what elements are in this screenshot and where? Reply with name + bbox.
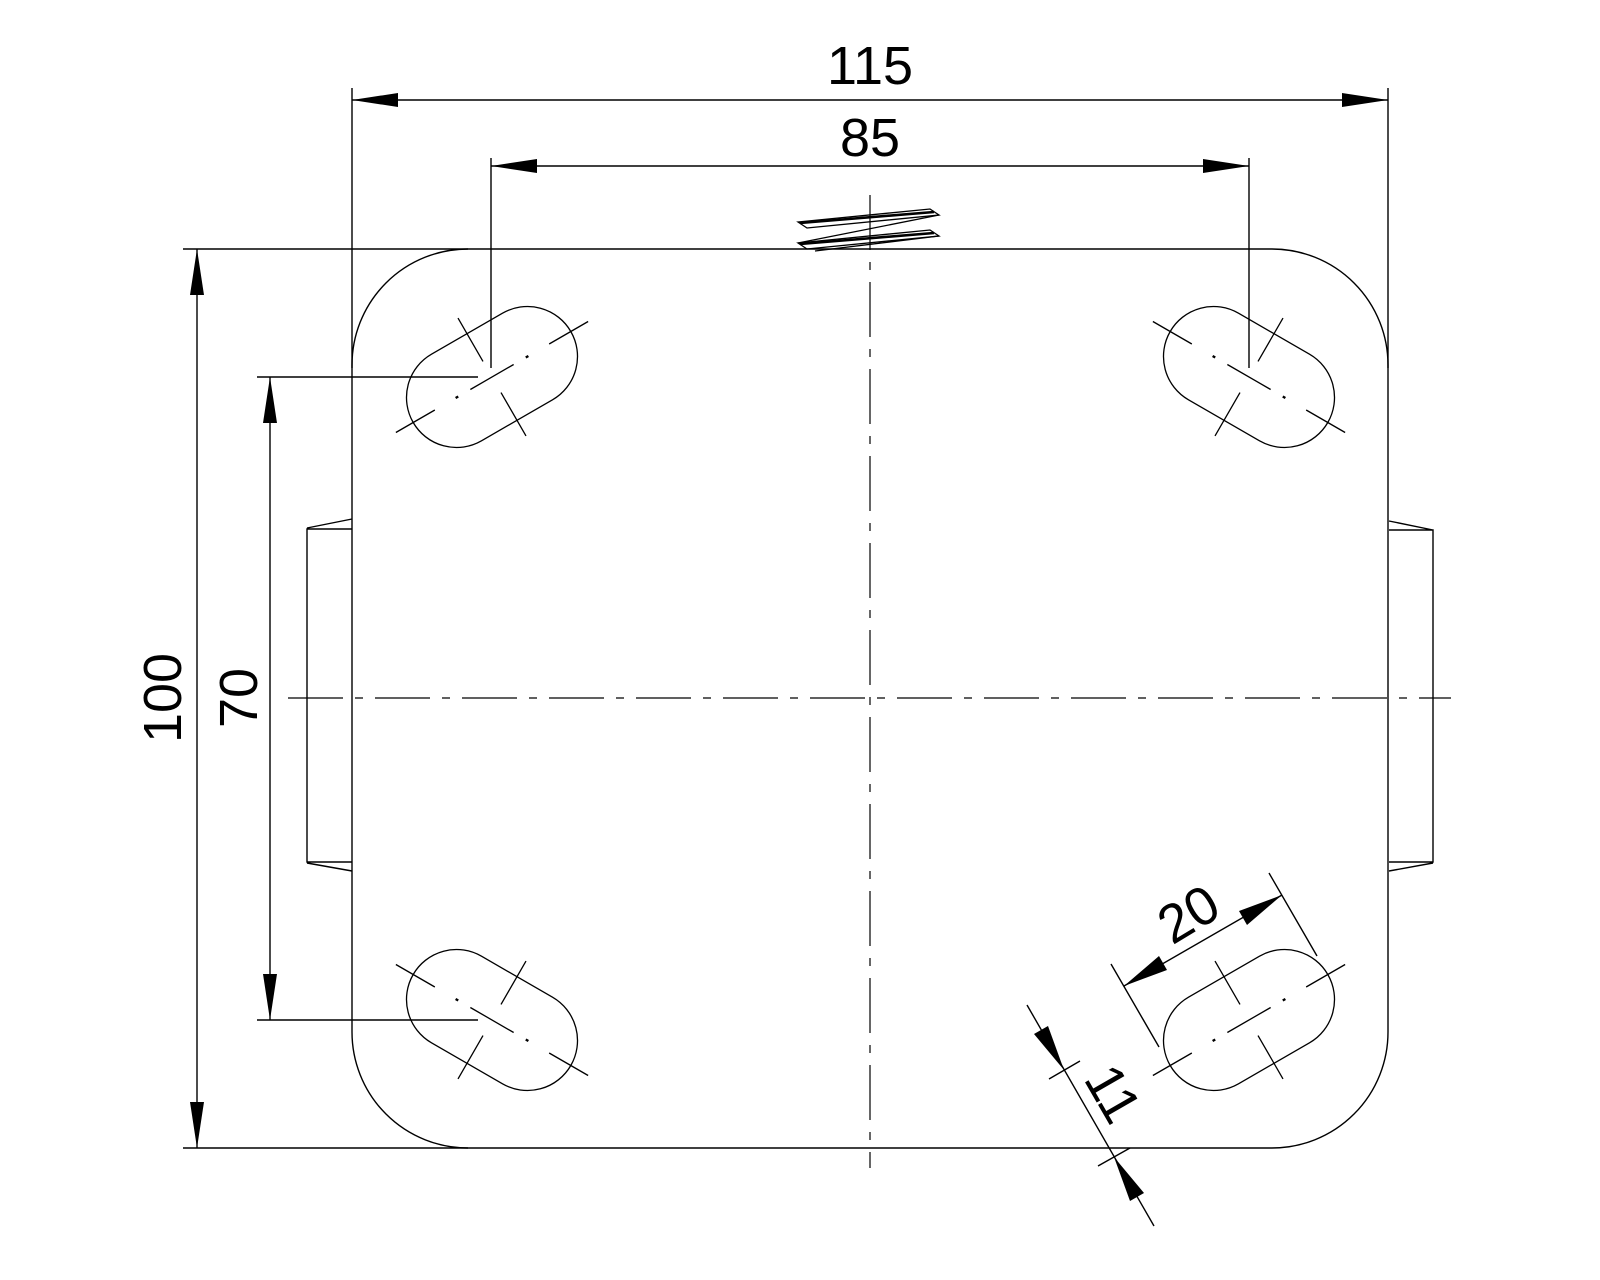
dim-arrow-right	[1203, 159, 1249, 173]
dim-hole-spacing-depth: 70	[209, 377, 478, 1020]
dim-slot-width: 11	[1027, 1005, 1154, 1226]
engineering-drawing: 115 85 100 70 20 11	[0, 0, 1600, 1280]
dim-arrow-lower	[1114, 1157, 1144, 1201]
dim-slot-length: 20	[1111, 873, 1317, 1047]
dim-arrow-bottom	[190, 1102, 204, 1148]
thread-symbol	[798, 209, 939, 251]
dim-arrow-top	[190, 249, 204, 295]
dim-label-slot-width: 11	[1073, 1055, 1153, 1134]
dim-label-overall-depth: 100	[133, 653, 193, 743]
left-tab	[307, 519, 352, 871]
right-tab	[1389, 521, 1433, 871]
drawing-sheet: 115 85 100 70 20 11	[0, 0, 1600, 1280]
dim-label-hole-spacing-depth: 70	[209, 668, 269, 728]
dim-arrow-left	[491, 159, 537, 173]
dim-arrow-bottom	[263, 974, 277, 1020]
dim-arrow-right	[1342, 93, 1388, 107]
dim-arrow-left	[1124, 956, 1167, 986]
dim-label-slot-length: 20	[1148, 873, 1230, 955]
mounting-slot-bottom-right	[1119, 906, 1379, 1135]
dim-label-overall-width: 115	[827, 36, 913, 96]
dim-arrow-top	[263, 377, 277, 423]
dim-label-hole-spacing-width: 85	[840, 108, 900, 168]
dim-arrow-left	[352, 93, 398, 107]
dim-arrow-upper	[1034, 1026, 1064, 1070]
dim-arrow-right	[1239, 895, 1282, 925]
